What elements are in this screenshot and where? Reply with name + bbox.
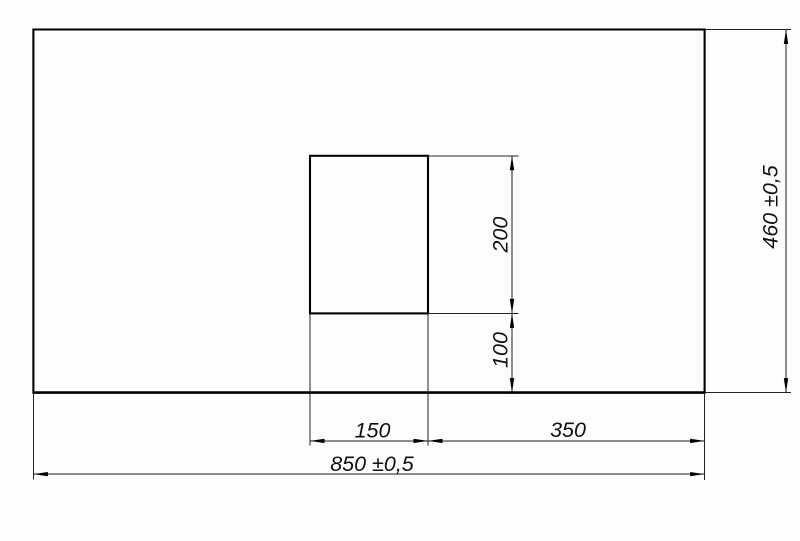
svg-text:460 ±0,5: 460 ±0,5 bbox=[758, 164, 782, 249]
svg-text:200: 200 bbox=[489, 217, 513, 254]
svg-text:850 ±0,5: 850 ±0,5 bbox=[330, 452, 415, 476]
svg-text:150: 150 bbox=[355, 419, 391, 443]
svg-text:350: 350 bbox=[550, 418, 586, 442]
svg-text:100: 100 bbox=[489, 332, 513, 368]
